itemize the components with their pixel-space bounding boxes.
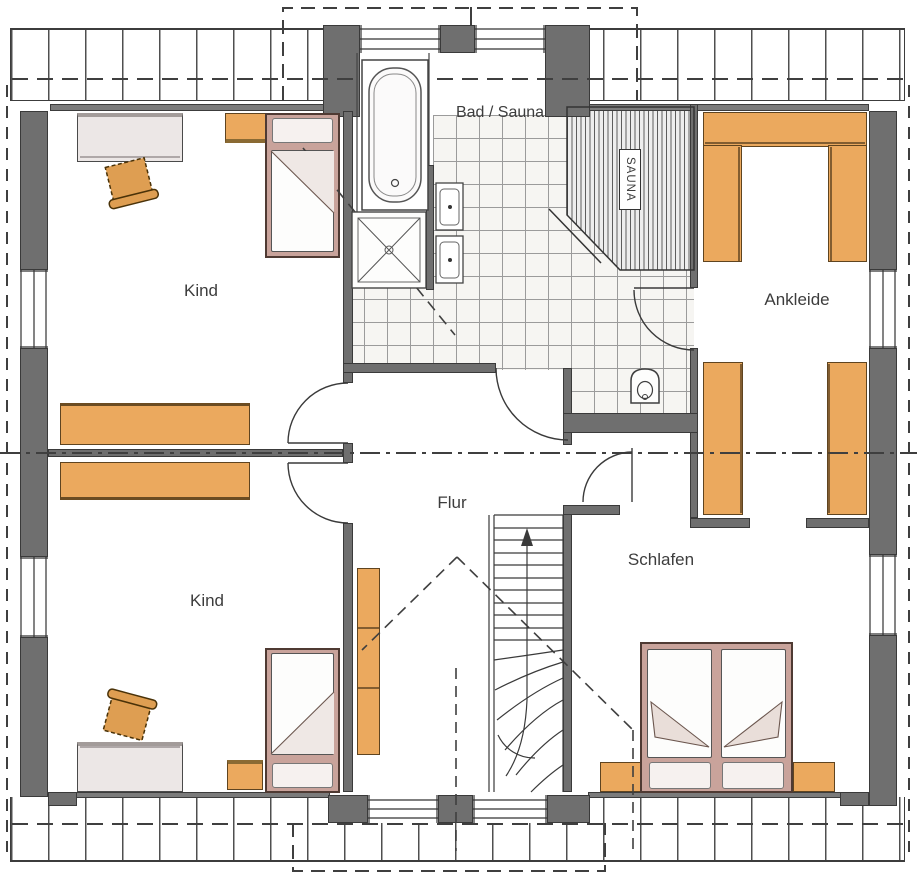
mattress-kind-bottom xyxy=(271,653,334,755)
dormer-top-window-left xyxy=(360,25,440,53)
dormer-bottom-window-left xyxy=(368,795,438,823)
wardrobe-ankleide-right-leg xyxy=(828,145,867,262)
dormer-top-pier-left xyxy=(323,25,360,117)
desk-chair-kind-top xyxy=(100,157,159,210)
window-left-2 xyxy=(20,557,48,637)
wall-corner-bottom-right xyxy=(840,792,869,806)
wall-ankleide-west-lower xyxy=(690,348,698,518)
wall-bath-south xyxy=(343,363,496,373)
wall-stair-west-lower xyxy=(563,505,572,792)
dormer-top-pier-right xyxy=(545,25,590,117)
room-label-kind-top: Kind xyxy=(184,281,218,301)
shelf-kind-top xyxy=(60,403,250,445)
room-label-bad-sauna: Bad / Sauna xyxy=(456,104,544,122)
staircase xyxy=(489,515,563,792)
bath-floor-tiles xyxy=(433,115,567,370)
room-label-ankleide: Ankleide xyxy=(764,290,829,310)
wall-right-2 xyxy=(869,348,897,555)
wall-corner-bottom-left xyxy=(48,792,77,806)
bath-floor-tiles-lower xyxy=(353,288,433,370)
mattress-schlafen-right xyxy=(721,649,786,758)
cabinet-flur xyxy=(357,568,380,755)
wall-left-1 xyxy=(20,111,48,270)
wardrobe-ankleide-lower-right xyxy=(827,362,867,515)
mattress-kind-top xyxy=(271,150,334,252)
wall-kind-divider xyxy=(48,449,343,457)
dormer-bottom-pier-center xyxy=(438,795,473,823)
wardrobe-ankleide-top xyxy=(703,112,867,147)
nightstand-kind-bottom xyxy=(227,760,263,790)
wall-left-3 xyxy=(20,637,48,797)
door-bad xyxy=(496,368,568,440)
nightstand-schlafen-left xyxy=(600,762,642,792)
desk-kind-top xyxy=(77,113,183,162)
room-label-schlafen: Schlafen xyxy=(628,550,694,570)
door-kind-top xyxy=(288,383,348,443)
nightstand-schlafen-right xyxy=(793,762,835,792)
floor-plan: Kind Kind Bad / Sauna Flur Schlafen Ankl… xyxy=(0,0,917,878)
wall-left-2 xyxy=(20,348,48,557)
shelf-kind-bottom xyxy=(60,462,250,500)
window-right-1 xyxy=(869,270,897,348)
pillow-schlafen-left xyxy=(649,762,711,789)
wall-ankleide-west-upper xyxy=(690,104,698,288)
wardrobe-ankleide-left-leg xyxy=(703,145,742,262)
window-left-1 xyxy=(20,270,48,348)
nightstand-kind-top xyxy=(225,113,267,143)
wall-sink-stub xyxy=(426,165,434,290)
dormer-bottom-pier-left xyxy=(328,795,368,823)
dormer-top-pier-center xyxy=(440,25,475,53)
dormer-bottom-window-right xyxy=(473,795,547,823)
knee-wall-top-right xyxy=(588,104,869,111)
window-right-2 xyxy=(869,555,897,635)
knee-wall-top-left xyxy=(50,104,325,111)
wall-kind-bottom-east xyxy=(343,523,353,792)
stair-walk-arrow xyxy=(506,528,533,776)
room-label-kind-bottom: Kind xyxy=(190,591,224,611)
pillow-kind-top xyxy=(272,118,333,143)
wall-right-1 xyxy=(869,111,897,270)
pillow-kind-bottom xyxy=(272,763,333,788)
room-label-sauna: SAUNA xyxy=(619,149,641,210)
wc-floor-tiles xyxy=(567,268,694,413)
wall-wc-south xyxy=(563,413,698,433)
desk-chair-kind-bottom xyxy=(98,688,157,742)
dormer-bottom-pier-right xyxy=(547,795,590,823)
room-label-flur: Flur xyxy=(437,493,466,513)
pillow-schlafen-right xyxy=(722,762,784,789)
mattress-schlafen-left xyxy=(647,649,712,758)
wall-between-doors xyxy=(343,443,353,463)
wall-door-jamb xyxy=(563,505,620,515)
desk-kind-bottom xyxy=(77,742,183,792)
wardrobe-ankleide-lower-left xyxy=(703,362,743,515)
wall-stair-west-upper xyxy=(563,368,572,445)
shower xyxy=(352,212,426,288)
wall-ankleide-south-right xyxy=(806,518,869,528)
door-kind-bottom xyxy=(288,463,348,523)
dormer-top-window-right xyxy=(475,25,545,53)
wall-right-3 xyxy=(869,635,897,806)
door-schlafen xyxy=(583,448,632,502)
wall-ankleide-south-left xyxy=(690,518,750,528)
wall-kind-top-east xyxy=(343,111,353,383)
